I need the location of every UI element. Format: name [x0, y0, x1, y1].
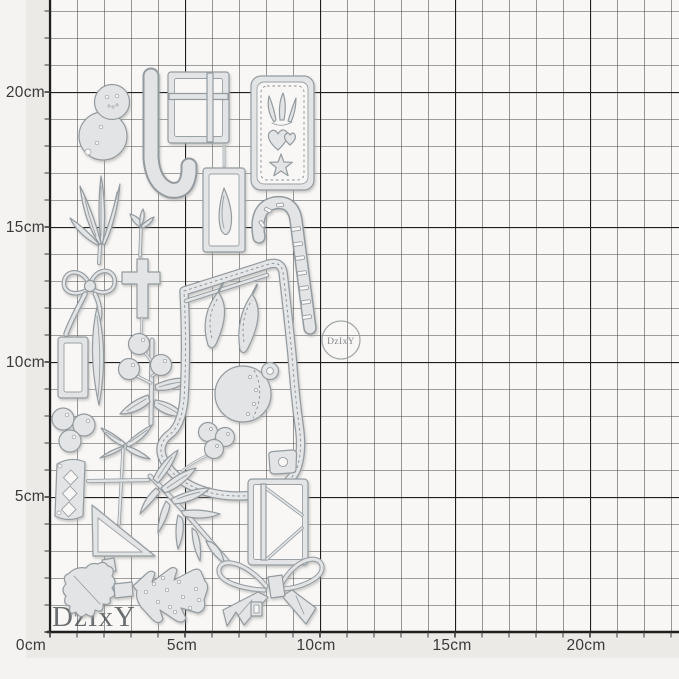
- gift-box-die: [168, 72, 229, 143]
- bow-knot: [268, 575, 285, 598]
- left-margin-strip: [26, 0, 50, 679]
- grid-mat-svg: 20cm 15cm 10cm 5cm 0cm 5cm 10cm 15cm 20c…: [0, 0, 679, 679]
- left-label-15cm: 15cm: [6, 219, 45, 236]
- tree-trunk: [114, 582, 133, 598]
- mat-bottom-edge: [0, 658, 679, 679]
- left-label-5cm: 5cm: [15, 488, 45, 505]
- left-label-20cm: 20cm: [6, 84, 45, 101]
- bottom-label-5cm: 5cm: [167, 637, 197, 654]
- bottom-label-10cm: 10cm: [296, 637, 335, 654]
- watermark-circle-text: DzIxY: [327, 337, 355, 347]
- stick-die: [88, 480, 148, 481]
- pennant-banner-die: [55, 459, 85, 519]
- bottom-label-15cm: 15cm: [432, 637, 471, 654]
- product-photo: 20cm 15cm 10cm 5cm 0cm 5cm 10cm 15cm 20c…: [0, 0, 679, 679]
- left-label-10cm: 10cm: [6, 354, 45, 371]
- envelope-die: [248, 479, 308, 565]
- stitched-tag-die: [251, 76, 314, 190]
- mini-basket-cap-die: [269, 450, 297, 474]
- bottom-label-20cm: 20cm: [566, 637, 605, 654]
- small-frame-die: [58, 337, 88, 398]
- bottom-label-0cm: 0cm: [16, 637, 46, 654]
